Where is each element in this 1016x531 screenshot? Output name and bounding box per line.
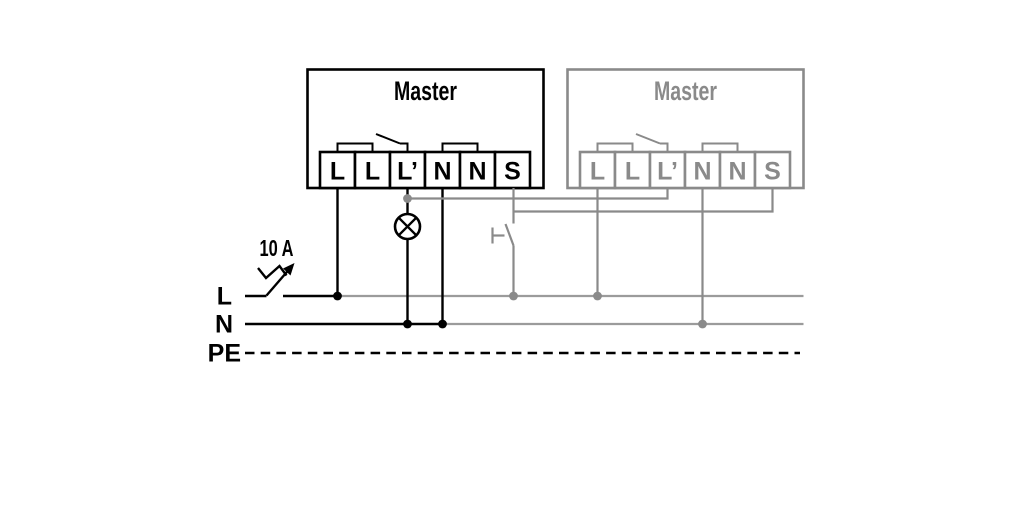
right-master-terminal-row: L L L’ N N S (580, 152, 790, 188)
junction-dot-l-bus-right-master (593, 292, 602, 301)
pushbutton-contact-lever (506, 224, 514, 246)
terminal-label: N (693, 158, 711, 186)
terminal-label: L (625, 158, 640, 186)
left-master-title: Master (394, 76, 457, 106)
terminal-label: L (590, 158, 605, 186)
pushbutton-switch-icon (493, 224, 514, 246)
junction-dot-n-bus-right-master (698, 320, 707, 329)
terminal-label: S (764, 158, 781, 186)
lamp-icon (395, 214, 420, 239)
bus-lines: L N PE (208, 283, 804, 368)
link-s-to-right-s (514, 188, 773, 212)
bus-label-line: L (217, 283, 232, 311)
circuit-breaker-icon: 10 A (258, 235, 295, 296)
wiring-diagram-page: L N PE 10 A Master (0, 0, 1016, 531)
terminal-label: N (433, 158, 451, 186)
terminal-label: S (504, 158, 521, 186)
right-master-device: Master L L L’ N N S (568, 70, 804, 189)
terminal-label: N (728, 158, 746, 186)
terminal-label: N (468, 158, 486, 186)
junction-dot-lamp-wire-link (403, 194, 412, 203)
junction-dots (333, 194, 707, 328)
inactive-wires (408, 188, 773, 324)
terminal-label: L (365, 158, 380, 186)
right-master-title: Master (654, 76, 717, 106)
left-master-terminal-row: L L L’ N N S (320, 152, 530, 188)
breaker-rating-label: 10 A (260, 235, 294, 261)
terminal-label: L’ (657, 158, 678, 186)
terminal-label: L (330, 158, 345, 186)
bus-label-neutral: N (215, 311, 233, 339)
junction-dot-n-bus-left-master (438, 320, 447, 329)
link-lprime-to-right-lprime (408, 188, 668, 199)
active-wires (338, 188, 443, 324)
junction-dot-l-bus-switch (509, 292, 518, 301)
junction-dot-n-bus-lamp (403, 320, 412, 329)
junction-dot-l-bus-left-master (333, 292, 342, 301)
wiring-diagram-canvas: L N PE 10 A Master (0, 0, 1016, 531)
terminal-label: L’ (397, 158, 418, 186)
left-master-device: Master L L L’ N N S (308, 70, 544, 189)
bus-label-earth: PE (208, 340, 241, 368)
